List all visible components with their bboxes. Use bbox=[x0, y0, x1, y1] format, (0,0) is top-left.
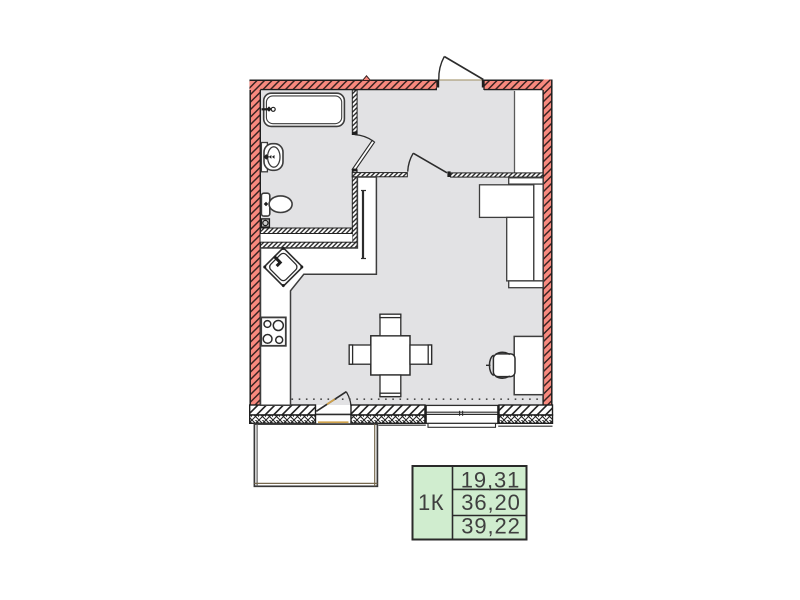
svg-text:19,31: 19,31 bbox=[461, 468, 521, 493]
svg-text:1К: 1К bbox=[418, 490, 444, 515]
svg-text:39,22: 39,22 bbox=[461, 514, 521, 539]
svg-text:36,20: 36,20 bbox=[461, 490, 521, 515]
